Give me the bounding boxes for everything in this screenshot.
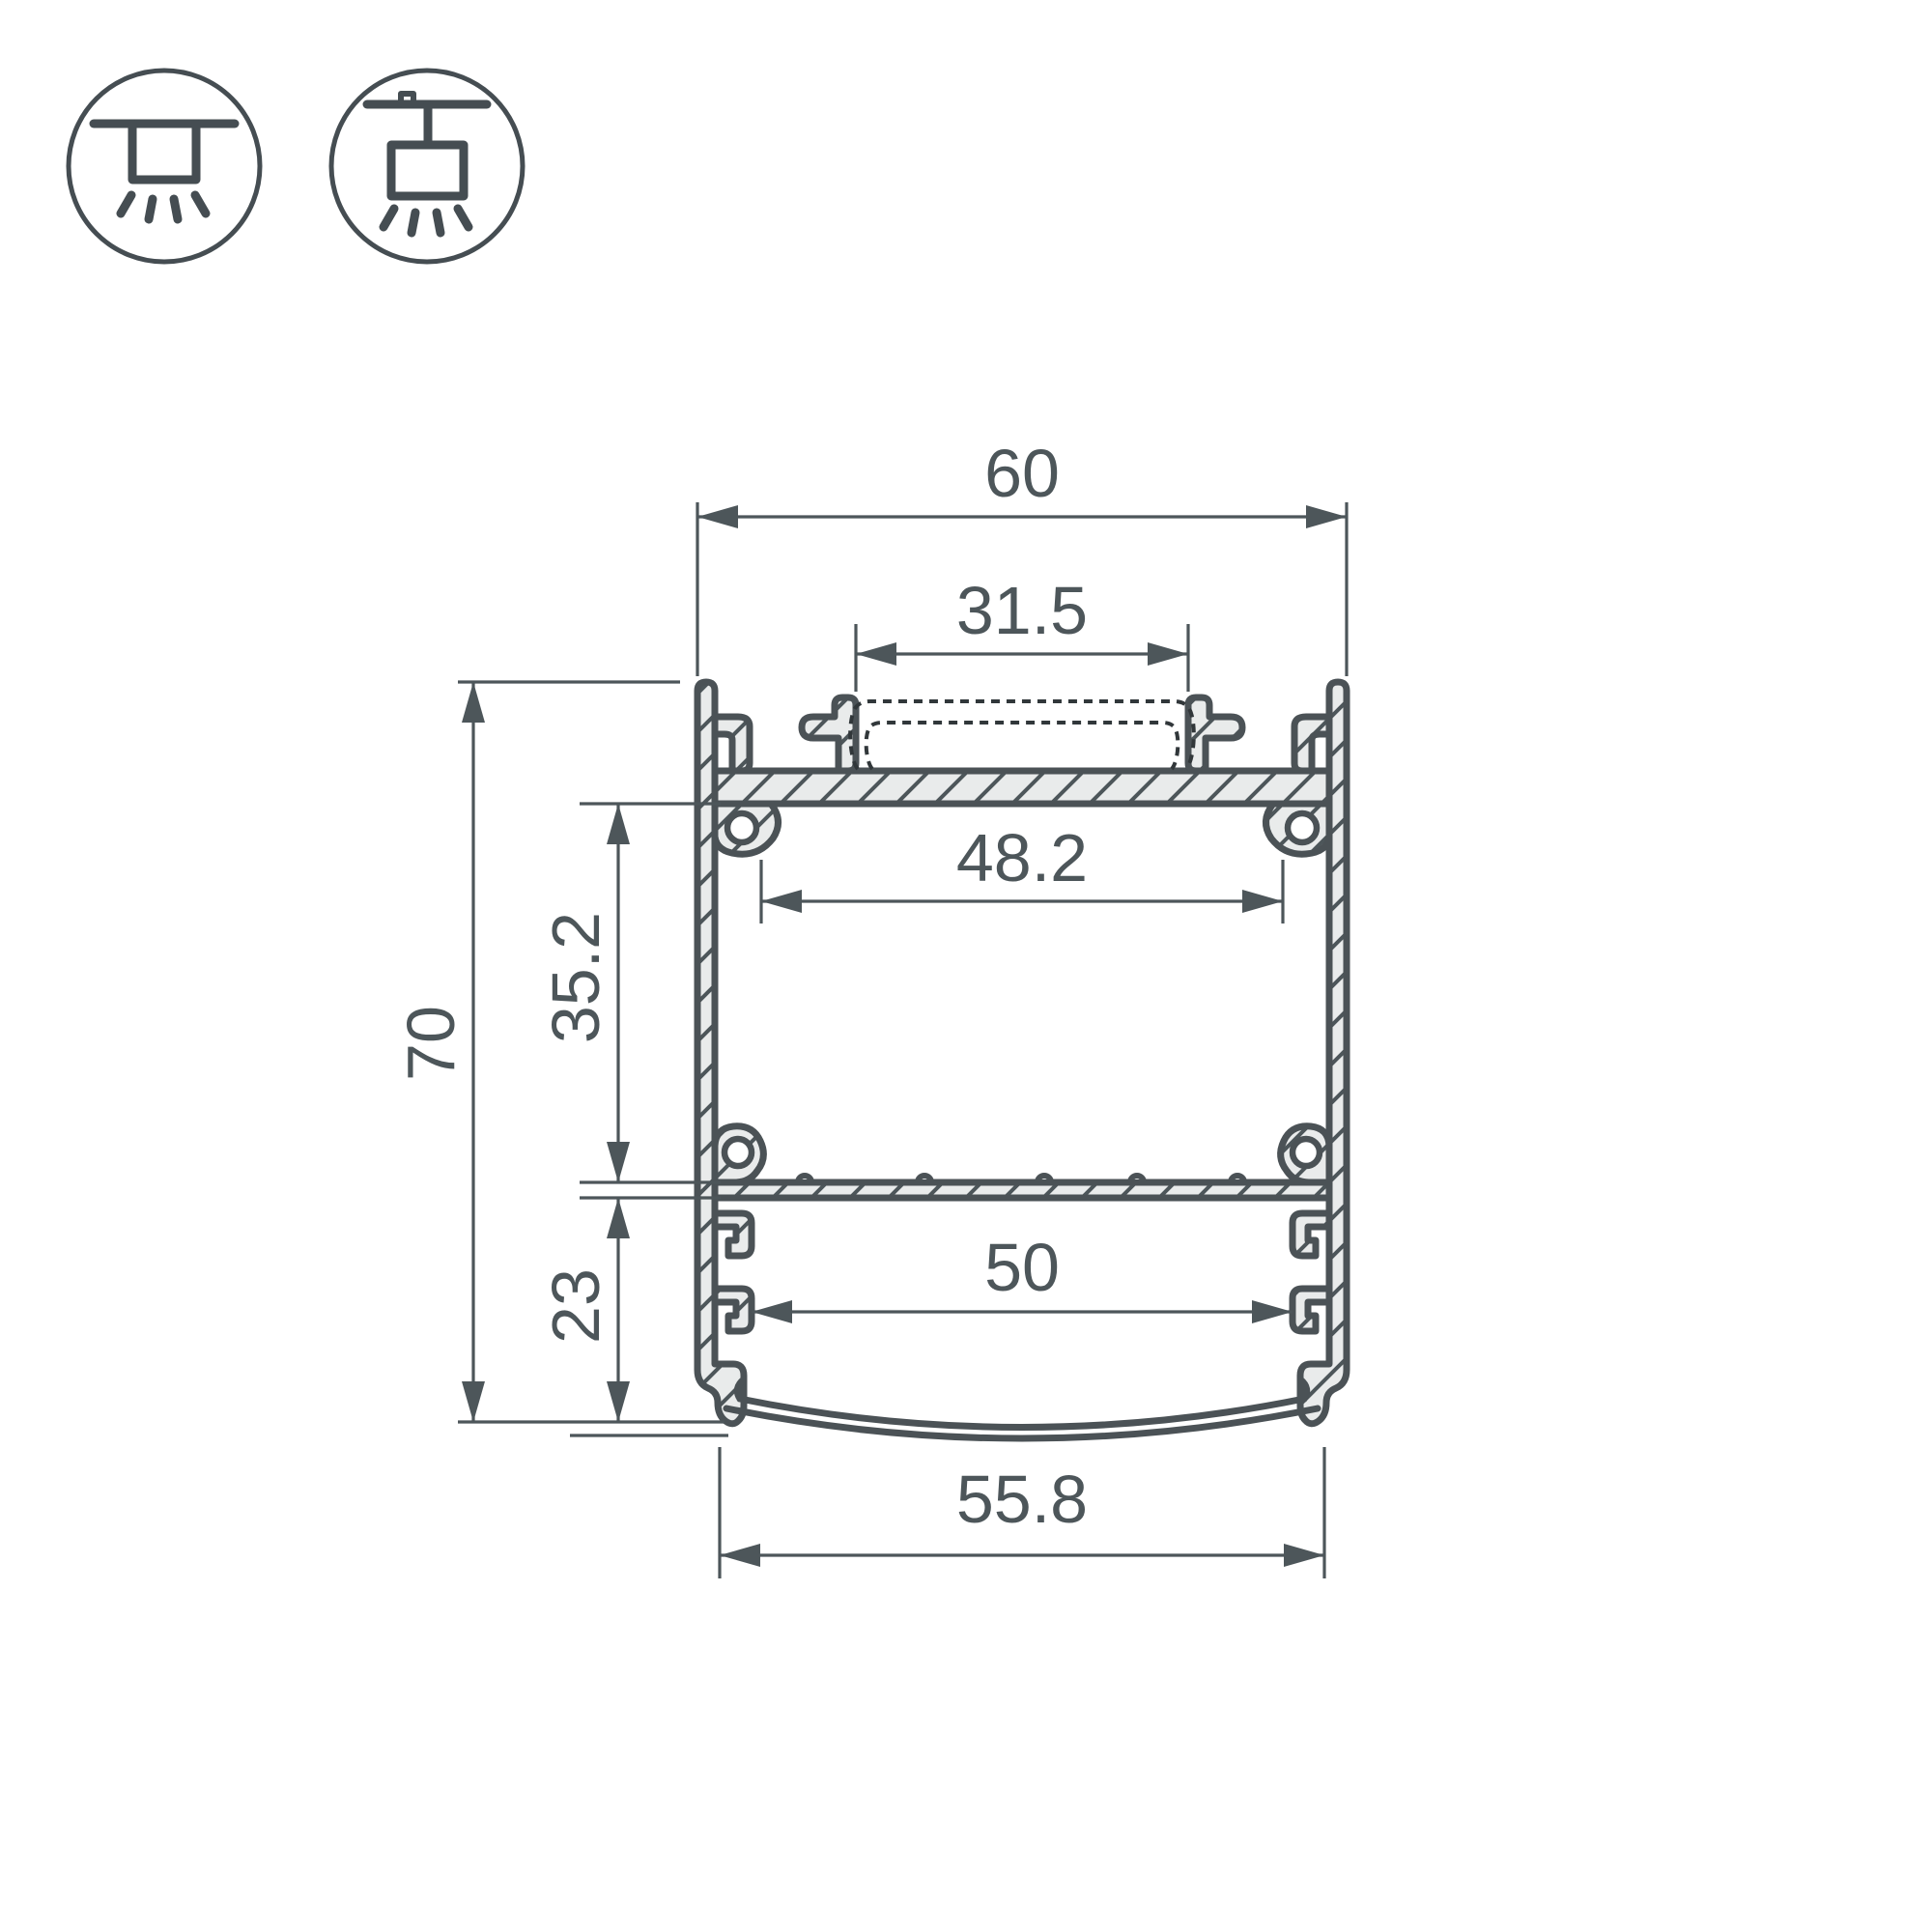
mounting-icons [69,71,523,262]
left-diffuser-clip-upper [715,1213,752,1256]
top-wall [715,771,1329,804]
hidden-cover-dashed [850,701,1194,769]
icon-circle [69,71,260,262]
dimensions: 60 31.5 48.2 70 [393,436,1347,1578]
dim-diffuser-opening-width-label: 50 [984,1230,1060,1305]
dim-overall-width-label: 60 [984,436,1060,511]
dim-top-channel-width: 31.5 [856,573,1188,692]
dim-top-channel-width-label: 31.5 [956,573,1088,648]
middle-left-screw-boss [715,1126,763,1182]
lamp-box [391,145,464,196]
light-rays [121,195,206,219]
right-wall-clip [1294,717,1329,771]
left-diffuser-clip-lower [715,1289,752,1331]
right-diffuser-clip-lower [1293,1289,1329,1331]
dim-bottom-width: 55.8 [720,1447,1324,1578]
screw-hole [727,813,756,842]
dim-lower-cavity-height: 23 [538,1198,721,1422]
dim-inner-width: 48.2 [761,820,1283,923]
dim-overall-height-label: 70 [393,1006,469,1081]
surface-mount-light-icon [69,71,260,262]
diffuser-lens [726,1379,1318,1438]
dim-diffuser-opening-width: 50 [752,1230,1293,1323]
left-channel-bracket [802,697,856,771]
middle-right-screw-boss [1281,1126,1329,1182]
dim-bottom-width-label: 55.8 [956,1462,1088,1537]
light-rays [384,209,469,233]
top-right-screw-boss [1265,804,1329,854]
technical-drawing: 60 31.5 48.2 70 [0,0,1932,1932]
screw-hole [724,1139,752,1166]
top-left-screw-boss [715,804,779,854]
left-wall-clip [715,717,750,771]
dim-lower-cavity-height-label: 23 [538,1268,613,1344]
profile-cross-section [697,682,1347,1438]
page: 60 31.5 48.2 70 [0,0,1932,1932]
dim-upper-cavity-height-label: 35.2 [538,912,613,1043]
pendant-mount-light-icon [331,71,523,262]
icon-circle [331,71,523,262]
dim-inner-width-label: 48.2 [956,820,1088,895]
right-channel-bracket [1188,697,1242,771]
right-diffuser-clip-upper [1293,1213,1329,1256]
screw-hole [1288,813,1317,842]
dim-upper-cavity-height: 35.2 [538,804,721,1182]
lamp-box [132,124,196,180]
screw-hole [1293,1139,1320,1166]
